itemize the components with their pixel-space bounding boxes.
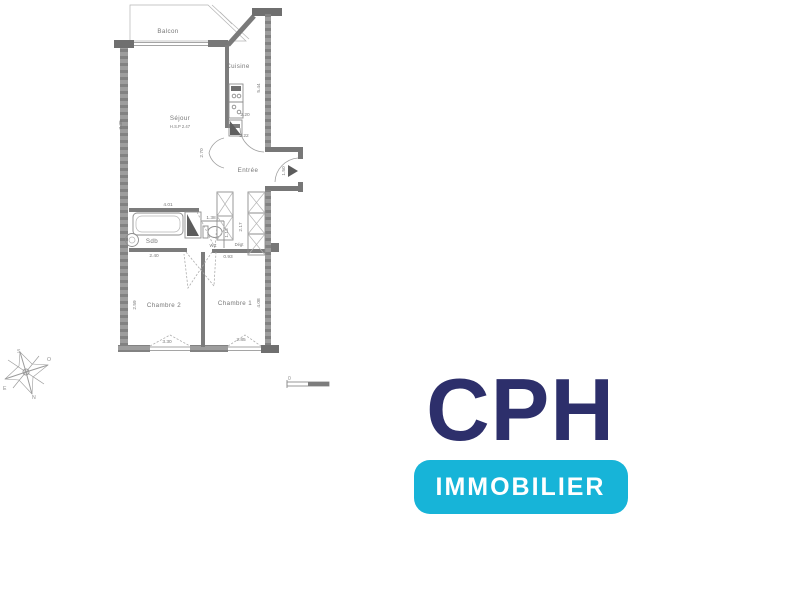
room-label-sejour: Séjour [170, 115, 190, 122]
room-label-degt: Dégt [235, 242, 245, 247]
bathtub [133, 213, 183, 235]
room-label-chambre1: Chambre 1 [218, 300, 252, 307]
room-label-wc: WC [210, 243, 217, 248]
room-label-entree: Entrée [238, 167, 259, 174]
scale-zero-label: 0 [288, 376, 291, 382]
compass-n: N [32, 395, 36, 400]
floor-plan: Balcon Cuisine Séjour H.S.P 2.47 Entrée … [112, 0, 332, 370]
dim-sdb-width: 2.40 [149, 253, 159, 259]
dim-sejour-height: 7.39 [118, 120, 124, 130]
dim-cuisine-width: 2.20 [240, 112, 250, 118]
dim-cuisine-height: 5.44 [256, 83, 262, 93]
dim-placard-height: 2.17 [238, 222, 244, 232]
compass-e: E [3, 386, 7, 392]
dim-chambre2-height: 2.59 [132, 300, 138, 310]
dim-wc-width: 1.38 [206, 215, 216, 221]
kitchen-appliances [229, 84, 243, 136]
compass-o: O [47, 357, 51, 363]
room-note-sejour: H.S.P 2.47 [170, 124, 191, 129]
dim-degt-width: 0.93 [223, 254, 233, 260]
compass-s: S [17, 349, 21, 355]
dim-entree-height: 2.70 [199, 148, 205, 158]
dim-wc-depth: 1.13 [224, 228, 230, 238]
room-label-sdb: Sdb [146, 238, 158, 245]
entry-arrow-icon [288, 165, 298, 177]
dim-sdb-top: 4.01 [163, 202, 173, 208]
logo-tagline-badge: IMMOBILIER [414, 460, 628, 514]
agency-logo: CPH IMMOBILIER [398, 366, 643, 514]
compass-rose: S O E N [2, 346, 54, 400]
room-label-chambre2: Chambre 2 [147, 302, 181, 309]
dim-chambre1-window: 2.85 [236, 337, 246, 343]
dim-chambre1-height: 4.08 [256, 298, 262, 308]
dim-entree-door: 1.50 [281, 166, 287, 176]
logo-brand-text: CPH [398, 366, 643, 454]
exterior-walls [114, 8, 303, 353]
room-label-cuisine: Cuisine [226, 63, 250, 70]
scale-bar: 0 [284, 372, 336, 392]
dim-cuisine-door: 2.22 [239, 133, 249, 139]
dim-chambre2-window: 3.30 [162, 339, 172, 345]
balcony-outline [130, 5, 249, 41]
room-label-balcon: Balcon [157, 28, 178, 35]
